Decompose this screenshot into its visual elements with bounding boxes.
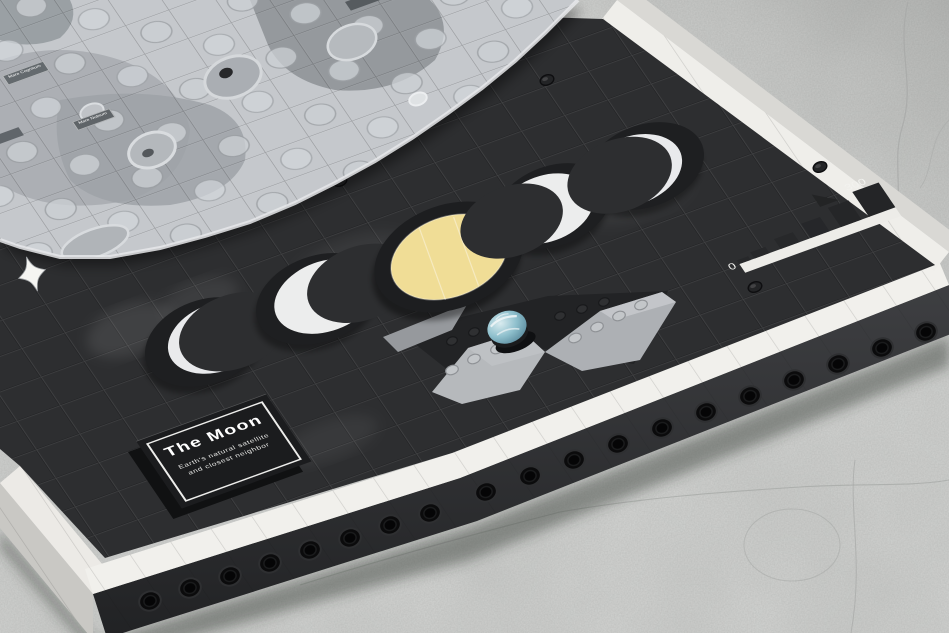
render-canvas: 0 300 xyxy=(0,0,949,633)
scene: 0 300 xyxy=(0,0,949,633)
